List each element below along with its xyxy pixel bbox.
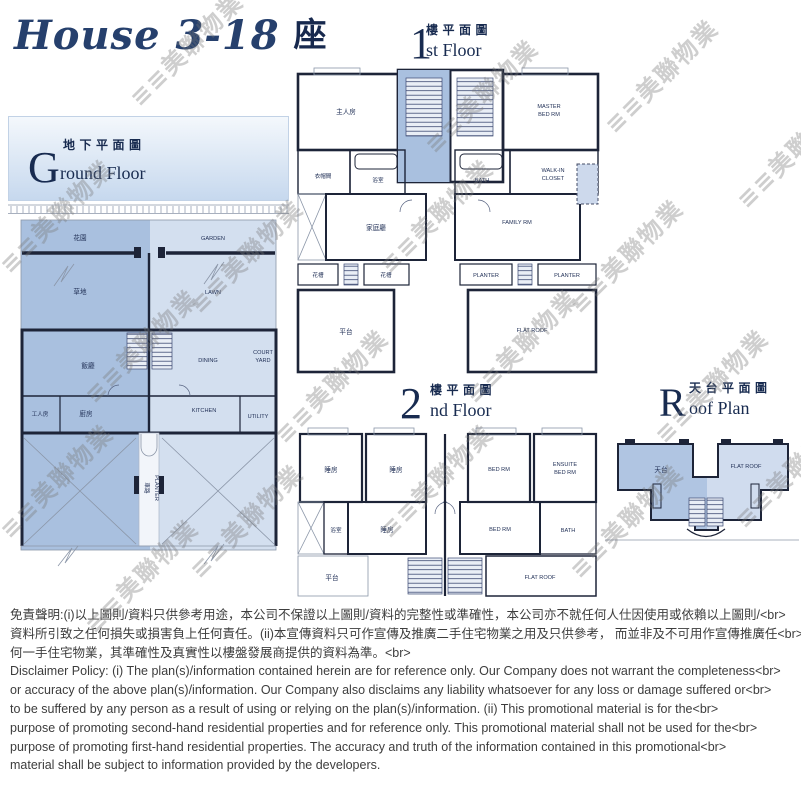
first-header-en: st Floor [426, 40, 482, 60]
room-label-garden-en: GARDEN [201, 236, 225, 242]
floorplan-page: House 3-18座 G 地下平面圖 round Floor [0, 0, 801, 786]
room-label-bed1-en: BED RM [488, 467, 510, 473]
room-label-family-en: FAMILY RM [502, 220, 532, 226]
first-header-cn: 樓平面圖 [426, 22, 492, 37]
room-label-master-en1: MASTER [537, 104, 560, 110]
disclaimer-line: purpose of promoting second-hand residen… [10, 719, 801, 738]
room-label-flatroof-en: FLAT ROOF [517, 328, 548, 334]
room-label-wic2: CLOSET [542, 176, 565, 182]
disclaimer-line: 資料所引致之任何損失或損害負上任何責任。(ii)本宣傳資料只可作宣傳及推廣二手住… [10, 625, 801, 644]
room-label-flatroof-en: FLAT ROOF [731, 464, 762, 470]
roof-geometry [605, 439, 799, 540]
room-label-terrace-cn: 平台 [339, 327, 353, 336]
room-label-bed1-cn: 睡房 [324, 465, 338, 474]
ground-floor-plan: G 地下平面圖 round Floor [8, 116, 289, 588]
room-label-drive-cn: 車路 [143, 482, 151, 494]
room-label-bed3-cn: 睡房 [380, 525, 394, 534]
room-label-planter-en: PLANTER [153, 475, 159, 501]
room-label-bath-cn: 浴室 [372, 176, 384, 184]
second-floor-geometry [298, 428, 596, 596]
house-title-suffix: 座 [294, 15, 327, 54]
first-floor-plan: 1 樓平面圖 st Floor [290, 12, 605, 378]
room-label-dining-en: DINING [198, 358, 218, 364]
roof-header-en: oof Plan [689, 398, 750, 418]
room-label-roof-cn: 天台 [654, 465, 668, 474]
ground-header-letter: G [28, 143, 60, 192]
room-label-planter-en2: PLANTER [554, 273, 580, 279]
house-range-title: House 3-18 [14, 12, 280, 59]
room-label-dining-cn: 飯廳 [81, 361, 95, 370]
room-label-planter-cn: 花槽 [312, 271, 324, 279]
room-label-lawn-cn: 草地 [73, 287, 87, 296]
room-label-utility-en: UTILITY [248, 414, 269, 420]
room-label-flatroof-en: FLAT ROOF [525, 575, 556, 581]
ground-header-cn: 地下平面圖 [63, 137, 146, 152]
room-label-family-cn: 家庭廳 [366, 223, 386, 232]
roof-plan: R 天台平面圖 oof Plan 天台 FLAT ROOF [603, 372, 801, 557]
roof-header-letter: R [659, 380, 686, 425]
room-label-bed2-en: BED RM [489, 527, 511, 533]
second-header-en: nd Floor [430, 400, 492, 420]
ground-plot [21, 220, 276, 566]
watermark: ≡≡美聯物業 [595, 10, 725, 140]
disclaimer-line: purpose of promoting first-hand resident… [10, 738, 801, 757]
disclaimer-block: 免責聲明:(i)以上圖則/資料只供參考用途，本公司不保證以上圖則/資料的完整性或… [10, 606, 801, 775]
room-label-bath-en: BATH [561, 528, 576, 534]
road-band [8, 205, 289, 214]
room-label-courtyard2: YARD [255, 358, 270, 364]
room-label-planter-en1: PLANTER [473, 273, 499, 279]
room-label-lawn-en: LAWN [205, 290, 221, 296]
watermark: ≡≡美聯物業 [727, 85, 801, 215]
room-label-bed2-cn: 睡房 [389, 465, 403, 474]
room-label-planter-cn2: 花槽 [380, 271, 392, 279]
roof-header-cn: 天台平面圖 [689, 380, 772, 395]
room-label-master-cn: 主人房 [336, 107, 356, 116]
room-label-closet-cn: 衣帽間 [315, 172, 332, 180]
room-label-bath-en: BATH [475, 178, 490, 184]
room-label-garden-cn: 花園 [73, 233, 87, 242]
disclaimer-line: Disclaimer Policy: (i) The plan(s)/infor… [10, 662, 801, 681]
page-title: House 3-18座 [14, 8, 327, 59]
disclaimer-line: material shall be subject to information… [10, 756, 801, 775]
room-label-kitchen-en: KITCHEN [192, 408, 217, 414]
disclaimer-line: or accuracy of the above plan(s)/informa… [10, 681, 801, 700]
disclaimer-line: to be suffered by any person as a result… [10, 700, 801, 719]
disclaimer-line: 免責聲明:(i)以上圖則/資料只供參考用途，本公司不保證以上圖則/資料的完整性或… [10, 606, 801, 625]
room-label-utility-cn: 工人房 [32, 410, 49, 418]
room-label-ensuite2: BED RM [554, 470, 576, 476]
room-label-ensuite1: ENSUITE [553, 462, 578, 468]
room-label-bath-cn: 浴室 [330, 526, 342, 534]
room-label-master-en2: BED RM [538, 112, 560, 118]
second-header-letter: 2 [400, 379, 422, 428]
room-label-wic1: WALK-IN [541, 168, 564, 174]
room-label-courtyard: COURT [253, 350, 273, 356]
second-header-cn: 樓平面圖 [430, 382, 496, 397]
room-label-terrace-cn: 平台 [325, 573, 339, 582]
second-floor-plan: 2 樓平面圖 nd Floor [290, 374, 605, 604]
room-label-kitchen-cn: 廚房 [79, 409, 93, 418]
ground-header-en: round Floor [60, 163, 146, 183]
disclaimer-line: 何一手住宅物業，其準確性及真實性以樓盤發展商提供的資料為準。<br> [10, 644, 801, 663]
